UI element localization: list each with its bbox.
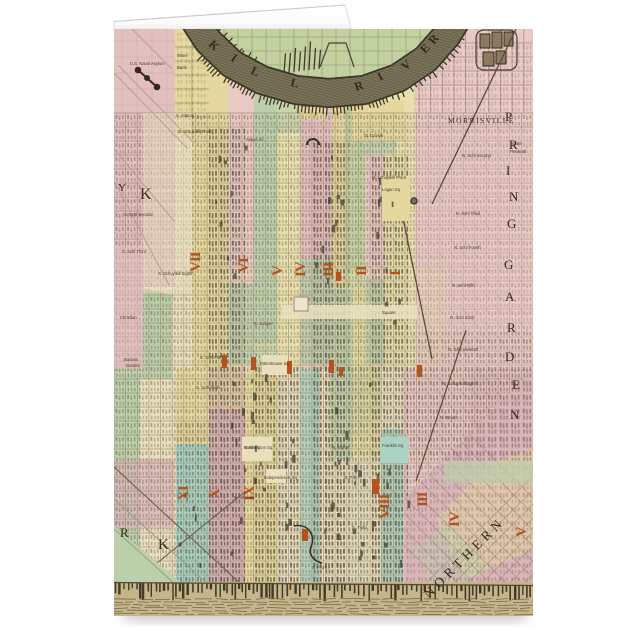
svg-text:Garden: Garden xyxy=(126,363,141,368)
svg-text:S. Fifth: S. Fifth xyxy=(344,475,358,480)
svg-text:N. Eighth: N. Eighth xyxy=(332,445,350,450)
svg-text:Logan Sq: Logan Sq xyxy=(382,187,401,192)
svg-text:Rittenhouse Sq.: Rittenhouse Sq. xyxy=(260,361,290,366)
svg-text:V: V xyxy=(270,265,286,276)
svg-text:K: K xyxy=(158,537,169,553)
svg-text:State: State xyxy=(512,141,522,146)
svg-text:U.S. Naval Asylum: U.S. Naval Asylum xyxy=(130,61,165,66)
svg-text:S. Schl Fifth: S. Schl Fifth xyxy=(200,355,223,360)
svg-text:P: P xyxy=(505,109,512,124)
svg-text:E: E xyxy=(512,377,520,392)
svg-text:VII: VII xyxy=(188,251,204,272)
svg-text:N. Schl Fifth: N. Schl Fifth xyxy=(452,283,475,288)
svg-text:K: K xyxy=(140,186,152,203)
svg-text:IV: IV xyxy=(447,511,463,527)
svg-text:Y: Y xyxy=(118,182,126,194)
svg-text:N: N xyxy=(509,189,519,204)
svg-text:Penitentl: Penitentl xyxy=(510,149,526,154)
svg-text:S. Adams: S. Adams xyxy=(176,113,194,118)
svg-text:S. Schuylkill Front: S. Schuylkill Front xyxy=(178,129,212,134)
svg-text:Water: Water xyxy=(177,53,189,58)
svg-text:III: III xyxy=(321,261,337,277)
svg-text:N. Schuylkill Eighth: N. Schuylkill Eighth xyxy=(442,381,479,386)
svg-text:Botanic: Botanic xyxy=(124,357,138,362)
svg-text:XI: XI xyxy=(176,485,192,501)
svg-text:IV: IV xyxy=(293,261,309,277)
svg-text:Bank: Bank xyxy=(177,65,187,70)
svg-text:S. Schl Second: S. Schl Second xyxy=(124,212,153,217)
svg-text:G: G xyxy=(504,257,513,272)
svg-text:VIII: VIII xyxy=(377,493,393,519)
svg-text:Aspen Al.: Aspen Al. xyxy=(246,137,264,142)
svg-text:N. Schl Fourth: N. Schl Fourth xyxy=(454,245,481,250)
svg-text:S. Schl Third: S. Schl Third xyxy=(122,249,147,254)
svg-text:Franklin Sq: Franklin Sq xyxy=(382,443,404,448)
svg-text:N. Schuylkill Front: N. Schuylkill Front xyxy=(372,175,407,180)
svg-text:S. Schl Sixth: S. Schl Sixth xyxy=(196,385,220,390)
svg-text:R: R xyxy=(507,320,516,335)
svg-text:II: II xyxy=(354,265,370,276)
svg-text:V: V xyxy=(514,526,530,537)
svg-text:Square: Square xyxy=(382,310,396,315)
svg-text:I: I xyxy=(506,163,510,178)
svg-text:St. Davids: St. Davids xyxy=(364,133,383,138)
svg-text:D: D xyxy=(505,349,514,364)
svg-text:S. Third: S. Third xyxy=(352,525,367,530)
svg-text:N: N xyxy=(510,407,520,422)
svg-text:S. Ninth: S. Ninth xyxy=(244,445,260,450)
svg-text:N. Broad: N. Broad xyxy=(440,415,457,420)
svg-text:Independence Sq: Independence Sq xyxy=(264,475,298,480)
svg-text:N. Schl Seventh: N. Schl Seventh xyxy=(448,347,479,352)
svg-text:A: A xyxy=(505,289,515,304)
svg-text:S. Front: S. Front xyxy=(312,565,328,570)
svg-text:N. Schl Second: N. Schl Second xyxy=(462,153,492,158)
svg-text:Christian: Christian xyxy=(120,315,137,320)
svg-text:VI: VI xyxy=(236,257,252,273)
svg-text:N. Schl Sixth: N. Schl Sixth xyxy=(450,315,475,320)
svg-text:X: X xyxy=(207,488,223,499)
svg-text:G: G xyxy=(507,216,516,231)
svg-text:S. Juniper: S. Juniper xyxy=(254,321,273,326)
svg-text:Brook: Brook xyxy=(302,103,314,108)
svg-text:N. Schl Third: N. Schl Third xyxy=(456,211,481,216)
svg-text:R: R xyxy=(120,525,129,540)
svg-text:S. Schuylkill Eighth: S. Schuylkill Eighth xyxy=(158,271,194,276)
svg-text:S. Seventh: S. Seventh xyxy=(234,495,255,500)
svg-text:III: III xyxy=(415,491,431,507)
